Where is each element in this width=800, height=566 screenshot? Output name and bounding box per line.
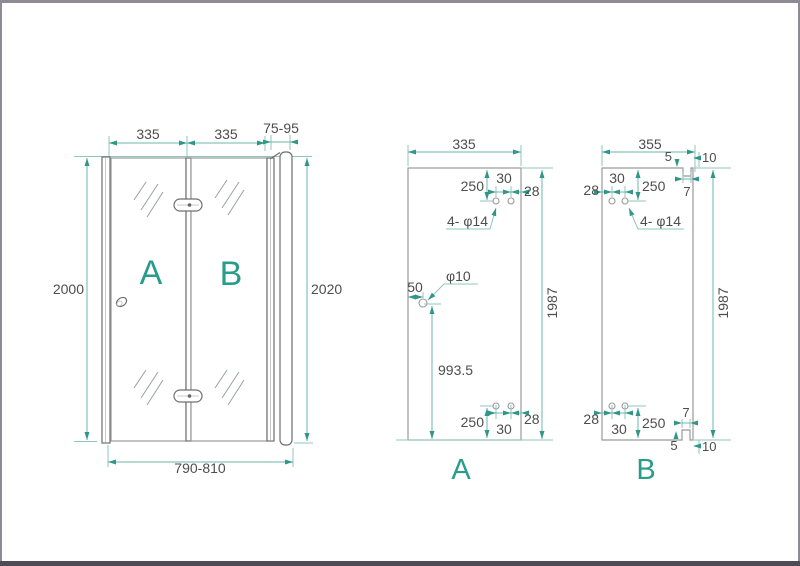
dim-panel-b-width: 355 <box>638 136 662 152</box>
dim-front-height-left: 2000 <box>53 281 84 297</box>
window-bottom-bar <box>0 561 800 566</box>
dim-wall-profile-range: 75-95 <box>263 120 299 136</box>
dim-panel-b-bottom-notch-width: 5 <box>670 438 677 453</box>
dim-panel-a-bottom-offset: 250 <box>461 414 485 430</box>
dim-panel-a-height: 1987 <box>544 287 560 318</box>
dim-panel-b-top-offset: 250 <box>642 178 666 194</box>
dim-panel-a-top-spacing: 30 <box>496 170 512 186</box>
dim-panel-b-top-edge: 28 <box>583 182 599 198</box>
wall-profile-cap <box>270 153 280 160</box>
dim-panel-b-bottom-offset: 250 <box>642 415 666 431</box>
window-border-left <box>0 0 2 566</box>
dim-panel-b-bottom-notch-edge: 10 <box>702 439 716 454</box>
dim-front-panel-a-width: 335 <box>136 126 160 142</box>
dim-panel-b-bottom-spacing: 30 <box>611 421 627 437</box>
shower-door-drawing: 335 335 75-95 2000 2020 790-810 A B 335 <box>0 0 800 566</box>
dim-front-total-width: 790-810 <box>174 460 226 476</box>
window-border-top <box>0 0 800 3</box>
knob-hole <box>419 299 427 307</box>
callout-panel-b-hinge-holes: 4- φ14 <box>640 213 681 229</box>
dim-panel-b-height: 1987 <box>715 287 731 318</box>
dim-panel-b-top-spacing: 30 <box>609 170 625 186</box>
dim-front-height-right: 2020 <box>311 281 342 297</box>
dim-panel-b-top-notch-depth: 7 <box>683 184 690 199</box>
panel-b-detail-label: B <box>636 454 655 486</box>
callout-knob-hole: φ10 <box>446 268 471 284</box>
dim-knob-hole-height: 993.5 <box>438 362 473 378</box>
panel-a-detail-label: A <box>451 454 471 486</box>
hinge-top <box>174 199 202 211</box>
panel-a-detail-view: 335 250 30 28 4- φ14 φ10 50 993.5 1987 2… <box>396 136 560 486</box>
dim-front-panel-b-width: 335 <box>214 126 238 142</box>
front-panel-b-glass <box>191 158 267 441</box>
front-panel-b-label: B <box>220 255 243 293</box>
dim-panel-b-bottom-notch-depth: 7 <box>682 405 689 420</box>
panel-b-outline <box>602 168 693 440</box>
dim-knob-hole-edge: 50 <box>407 279 423 295</box>
dim-panel-b-bottom-edge: 28 <box>583 411 599 427</box>
hinge-bottom <box>174 390 202 402</box>
front-view: 335 335 75-95 2000 2020 790-810 A B <box>53 120 343 476</box>
dim-panel-a-bottom-edge: 28 <box>524 411 540 427</box>
right-wall-profile <box>280 152 292 445</box>
panel-b-detail-view: 355 5 10 7 28 30 250 4- φ14 1987 250 <box>583 136 731 486</box>
front-panel-a-label: A <box>140 254 163 292</box>
dim-panel-b-top-notch-width: 5 <box>665 149 672 164</box>
left-wall-profile <box>102 157 110 443</box>
dim-panel-a-top-edge: 28 <box>524 183 540 199</box>
callout-panel-a-hinge-holes: 4- φ14 <box>447 213 488 229</box>
dim-panel-a-top-offset: 250 <box>461 178 485 194</box>
dim-panel-a-bottom-spacing: 30 <box>496 421 512 437</box>
technical-drawing-page: 335 335 75-95 2000 2020 790-810 A B 335 <box>0 0 800 566</box>
dim-panel-b-top-notch-edge: 10 <box>702 150 716 165</box>
dim-panel-a-width: 335 <box>452 136 476 152</box>
